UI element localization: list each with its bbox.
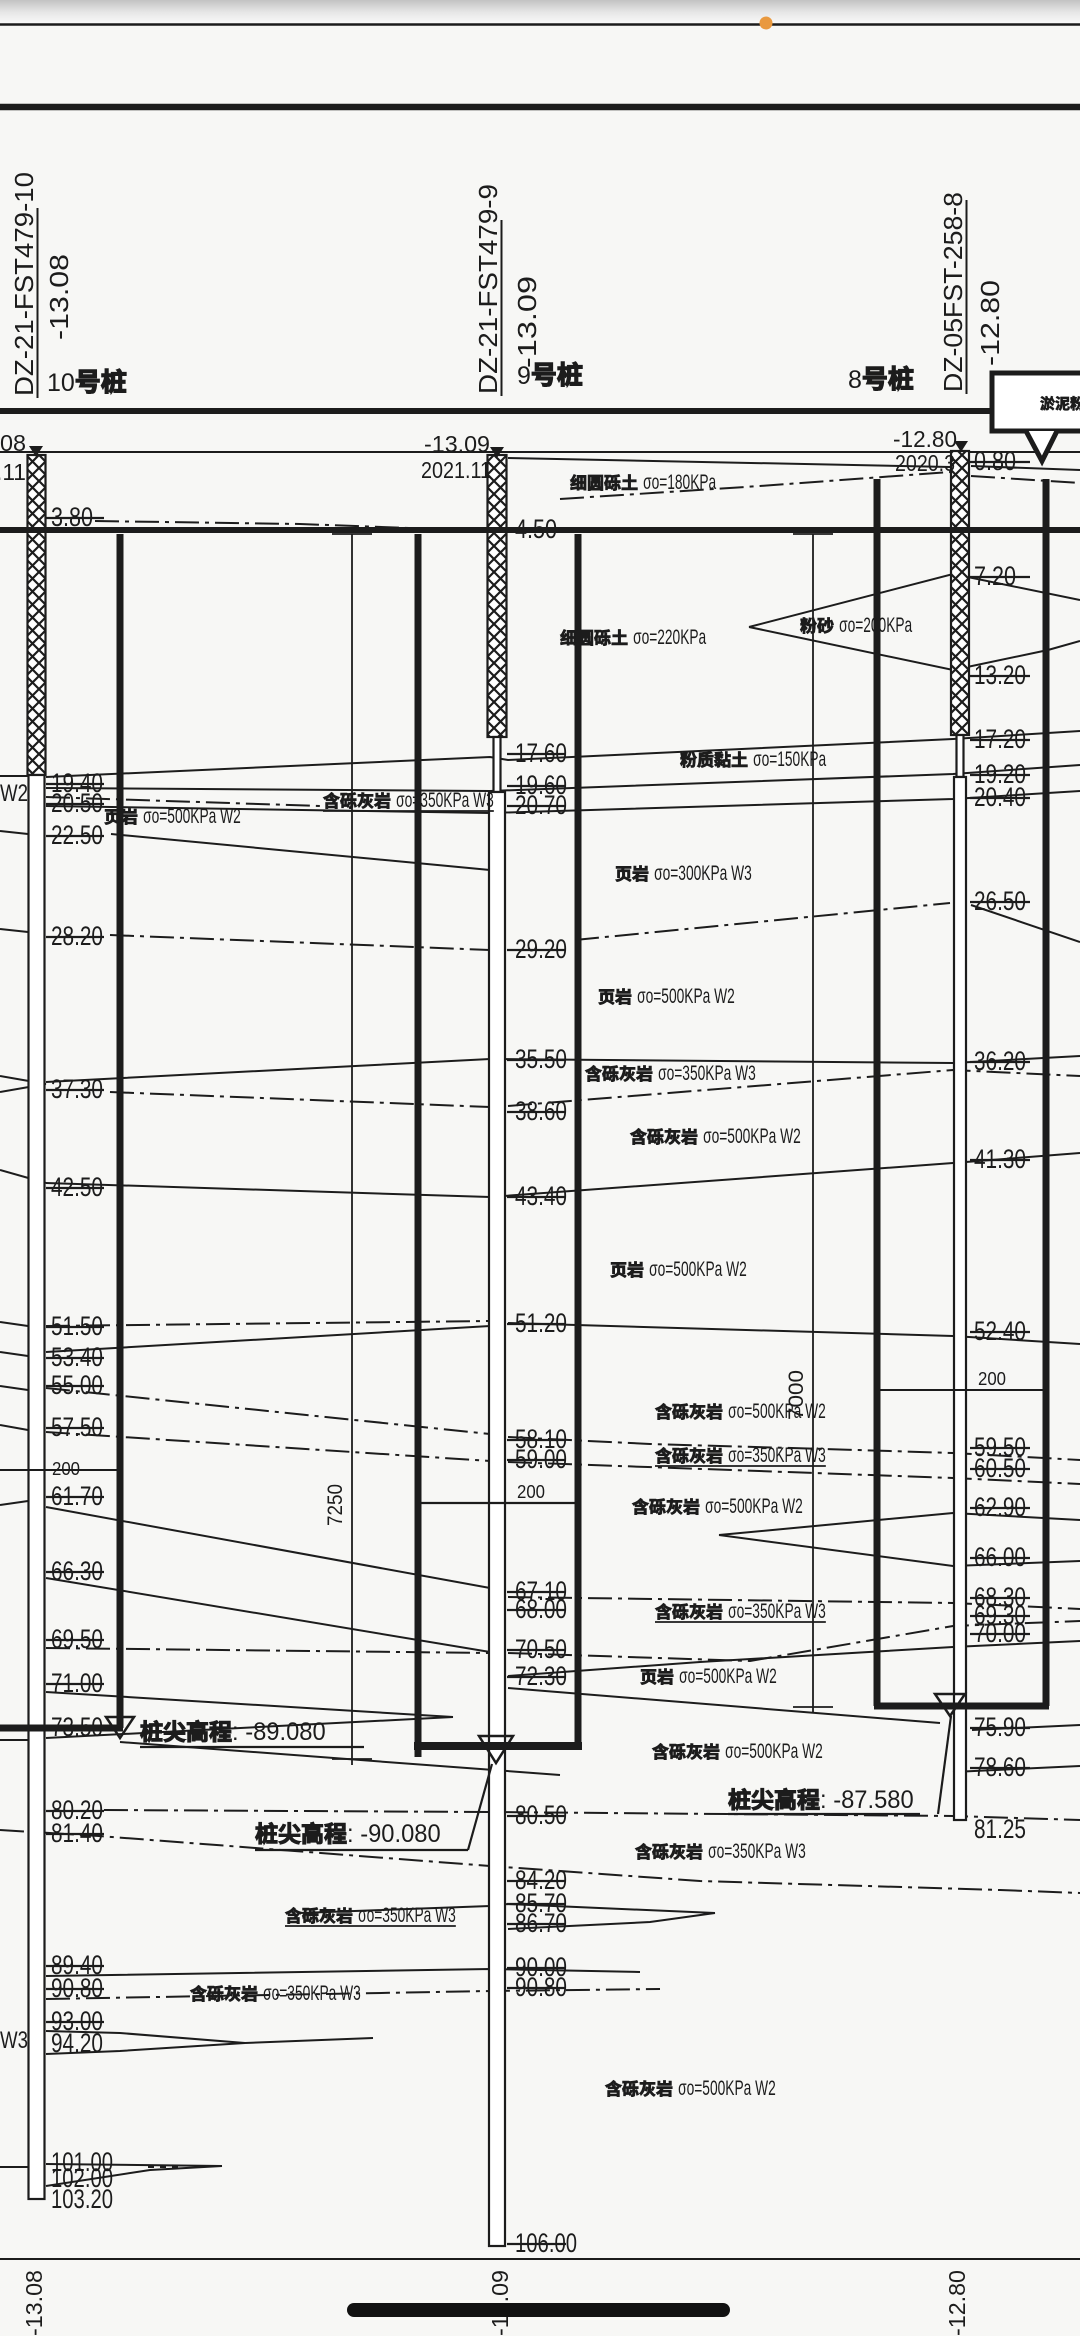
svg-text:200: 200 xyxy=(52,1459,80,1479)
svg-text:-13.08: -13.08 xyxy=(21,2270,47,2336)
svg-text:σo=350KPa W3: σo=350KPa W3 xyxy=(708,1840,806,1863)
svg-text:σo=350KPa W3: σo=350KPa W3 xyxy=(358,1904,456,1927)
svg-text:σo=180KPa: σo=180KPa xyxy=(643,471,716,494)
svg-text:: -89.080: : -89.080 xyxy=(232,1718,326,1746)
svg-text:200: 200 xyxy=(978,1369,1006,1389)
svg-text:W2: W2 xyxy=(0,780,28,807)
svg-text:σo=350KPa W3: σo=350KPa W3 xyxy=(728,1444,826,1467)
svg-text:σo=500KPa W2: σo=500KPa W2 xyxy=(649,1258,747,1281)
svg-text:103.20: 103.20 xyxy=(51,2184,113,2214)
svg-text:σo=500KPa W2: σo=500KPa W2 xyxy=(728,1400,826,1423)
svg-text:-13.08: -13.08 xyxy=(44,254,74,340)
svg-text:σo=500KPa W2: σo=500KPa W2 xyxy=(705,1495,803,1518)
svg-text:σo=350KPa W3: σo=350KPa W3 xyxy=(728,1600,826,1623)
svg-text:DZ-21-FST479-9: DZ-21-FST479-9 xyxy=(473,184,503,394)
svg-text:: -87.580: : -87.580 xyxy=(820,1786,914,1814)
svg-text:-13.09: -13.09 xyxy=(512,276,542,368)
svg-text:σo=350KPa W3: σo=350KPa W3 xyxy=(658,1062,756,1085)
svg-text:σo=500KPa W2: σo=500KPa W2 xyxy=(725,1740,823,1763)
svg-text:σo=150KPa: σo=150KPa xyxy=(753,748,826,771)
svg-text:DZ-05FST-258-8: DZ-05FST-258-8 xyxy=(938,192,968,392)
svg-text:: -90.080: : -90.080 xyxy=(347,1820,441,1848)
svg-text:σo=500KPa W2: σo=500KPa W2 xyxy=(678,2077,776,2100)
svg-text:σo=350KPa W3: σo=350KPa W3 xyxy=(263,1982,361,2005)
svg-text:DZ-21-FST479-10: DZ-21-FST479-10 xyxy=(9,172,39,396)
svg-text:8: 8 xyxy=(848,366,862,394)
svg-text:9: 9 xyxy=(517,362,531,390)
svg-text:σo=500KPa W2: σo=500KPa W2 xyxy=(703,1125,801,1148)
svg-text:2021.11: 2021.11 xyxy=(421,457,491,483)
svg-text:σo=200KPa: σo=200KPa xyxy=(839,614,912,637)
svg-text:W3: W3 xyxy=(0,2027,28,2054)
svg-text:7250: 7250 xyxy=(324,1484,347,1526)
svg-text:σo=220KPa: σo=220KPa xyxy=(633,626,706,649)
svg-text:σo=350KPa W3: σo=350KPa W3 xyxy=(396,789,494,812)
svg-text:2020.3: 2020.3 xyxy=(895,450,955,476)
svg-text:-12.80: -12.80 xyxy=(893,426,957,452)
svg-text:-12.80: -12.80 xyxy=(944,2270,970,2336)
svg-text:94.20: 94.20 xyxy=(51,2028,103,2058)
svg-text:-13.09: -13.09 xyxy=(424,431,490,457)
svg-text:.11: .11 xyxy=(0,459,26,485)
svg-text:200: 200 xyxy=(517,1482,545,1502)
svg-text:σo=300KPa W3: σo=300KPa W3 xyxy=(654,862,752,885)
svg-text:81.25: 81.25 xyxy=(974,1814,1026,1844)
svg-text:10: 10 xyxy=(47,369,75,397)
svg-text:σo=500KPa W2: σo=500KPa W2 xyxy=(637,985,735,1008)
svg-text:σo=500KPa W2: σo=500KPa W2 xyxy=(143,805,241,828)
svg-text:08: 08 xyxy=(0,430,26,456)
svg-text:σo=500KPa W2: σo=500KPa W2 xyxy=(679,1665,777,1688)
svg-text:-12.80: -12.80 xyxy=(975,280,1005,366)
